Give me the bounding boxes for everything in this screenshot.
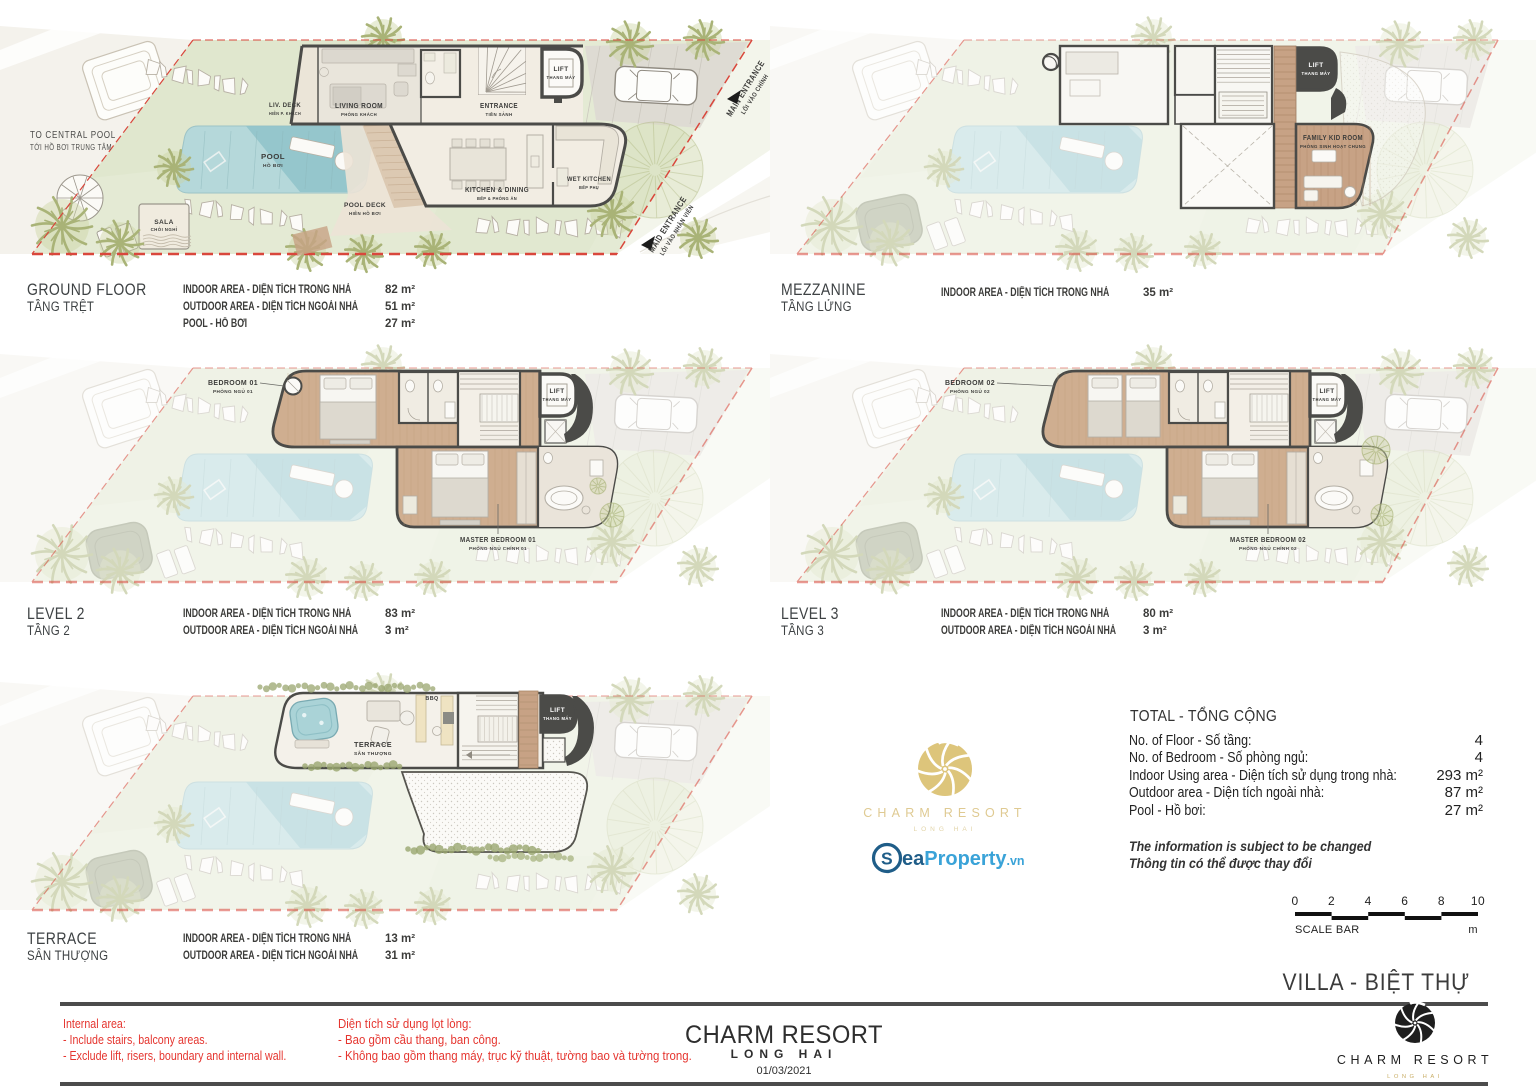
svg-text:POOL DECK: POOL DECK (344, 202, 386, 209)
svg-text:BẾP & PHÒNG ĂN: BẾP & PHÒNG ĂN (477, 194, 517, 201)
svg-text:HIÊN HỒ BƠI: HIÊN HỒ BƠI (349, 209, 381, 216)
svg-text:THANG MÁY: THANG MÁY (543, 716, 572, 721)
svg-text:BBQ: BBQ (425, 696, 438, 702)
svg-text:PHÒNG KHÁCH: PHÒNG KHÁCH (341, 110, 377, 117)
svg-text:TERRACE: TERRACE (354, 742, 392, 749)
svg-text:SALA: SALA (154, 219, 174, 226)
svg-text:TO CENTRAL POOL: TO CENTRAL POOL (30, 130, 116, 141)
svg-text:2: 2 (1328, 894, 1335, 908)
svg-text:4: 4 (1365, 894, 1372, 908)
svg-text:CHARM RESORT: CHARM RESORT (863, 806, 1027, 820)
svg-text:LIFT: LIFT (550, 707, 565, 714)
svg-text:8: 8 (1438, 894, 1445, 908)
svg-text:BEDROOM 01: BEDROOM 01 (208, 380, 258, 387)
svg-text:S: S (881, 849, 893, 869)
svg-text:THANG MÁY: THANG MÁY (1302, 71, 1331, 76)
svg-text:eaProperty.vn: eaProperty.vn (902, 848, 1025, 870)
svg-text:KITCHEN & DINING: KITCHEN & DINING (465, 185, 529, 194)
svg-text:POOL: POOL (261, 152, 285, 161)
svg-text:TỚI HỒ BƠI TRUNG TÂM: TỚI HỒ BƠI TRUNG TÂM (30, 141, 112, 152)
svg-text:LONG HAI: LONG HAI (1387, 1074, 1443, 1080)
svg-text:0: 0 (1291, 894, 1298, 908)
svg-text:PHÒNG SINH HOẠT CHUNG: PHÒNG SINH HOẠT CHUNG (1300, 142, 1366, 149)
svg-text:m: m (1468, 924, 1478, 936)
svg-text:PHÒNG NGỦ 02: PHÒNG NGỦ 02 (950, 387, 990, 394)
svg-text:6: 6 (1401, 894, 1408, 908)
svg-text:LONG HAI: LONG HAI (913, 826, 976, 833)
svg-text:ENTRANCE: ENTRANCE (480, 101, 518, 110)
svg-text:PHÒNG NGỦ CHÍNH 02: PHÒNG NGỦ CHÍNH 02 (1239, 544, 1297, 551)
svg-text:MASTER BEDROOM 02: MASTER BEDROOM 02 (1230, 537, 1306, 544)
svg-text:SÂN THƯỢNG: SÂN THƯỢNG (354, 750, 392, 756)
svg-text:MASTER BEDROOM 01: MASTER BEDROOM 01 (460, 537, 536, 544)
svg-text:CHARM RESORT: CHARM RESORT (1337, 1053, 1493, 1067)
svg-text:HỒ BƠI: HỒ BƠI (263, 162, 283, 168)
svg-text:LIFT: LIFT (1308, 62, 1323, 69)
svg-text:10: 10 (1471, 894, 1485, 908)
svg-text:LIV. DECK: LIV. DECK (269, 102, 301, 109)
svg-text:TIỀN SẢNH: TIỀN SẢNH (486, 111, 513, 117)
svg-text:HIÊN P. KHÁCH: HIÊN P. KHÁCH (269, 109, 301, 116)
svg-text:LIFT: LIFT (1319, 388, 1334, 395)
svg-text:LIFT: LIFT (549, 388, 564, 395)
svg-text:LIFT: LIFT (553, 66, 568, 73)
svg-text:LIVING ROOM: LIVING ROOM (335, 101, 383, 110)
svg-text:BẾP PHỤ: BẾP PHỤ (579, 184, 599, 190)
svg-text:PHÒNG NGỦ 01: PHÒNG NGỦ 01 (213, 387, 253, 394)
svg-text:THANG MÁY: THANG MÁY (543, 397, 572, 402)
svg-text:CHÒI NGHỈ: CHÒI NGHỈ (151, 227, 178, 232)
svg-text:FAMILY KID ROOM: FAMILY KID ROOM (1303, 135, 1363, 142)
svg-text:THANG MÁY: THANG MÁY (547, 75, 576, 80)
svg-text:SCALE BAR: SCALE BAR (1295, 924, 1359, 936)
svg-text:PHÒNG NGỦ CHÍNH 01: PHÒNG NGỦ CHÍNH 01 (469, 544, 527, 551)
svg-text:WET KITCHEN: WET KITCHEN (567, 176, 611, 183)
svg-text:THANG MÁY: THANG MÁY (1313, 397, 1342, 402)
svg-text:BEDROOM 02: BEDROOM 02 (945, 380, 995, 387)
